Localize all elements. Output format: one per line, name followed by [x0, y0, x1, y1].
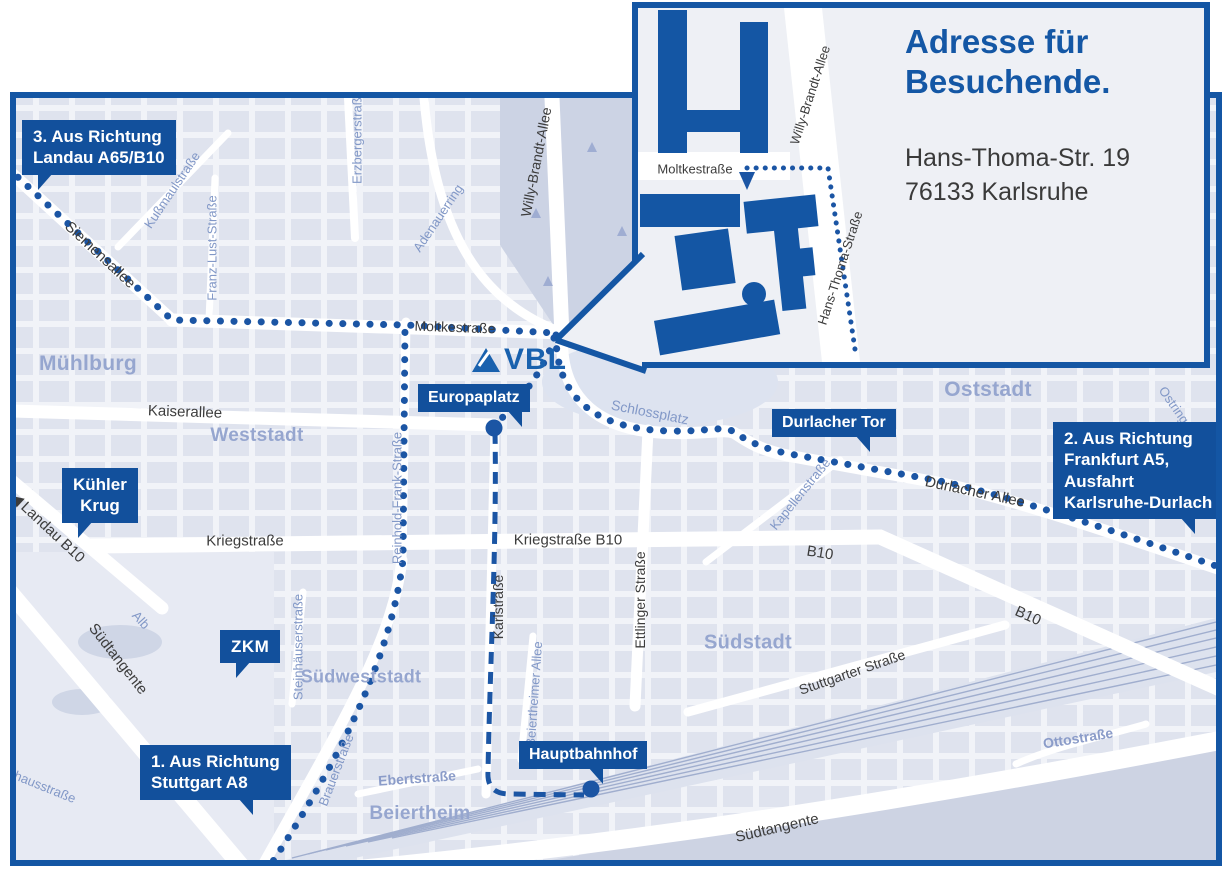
park-pond [78, 625, 162, 659]
europaplatz-dot [486, 420, 503, 437]
visitor-address-inset: Adresse für Besuchende. Hans-Thoma-Str. … [632, 2, 1210, 368]
vbl-directions-map: Siemensallee Kaiserallee Moltkestraße Kr… [0, 0, 1230, 874]
inset-street-label-moltkestrasse: Moltkestraße [657, 162, 732, 177]
inset-heading: Adresse für Besuchende. [905, 22, 1110, 101]
hauptbahnhof-dot [583, 781, 600, 798]
route-arrow-icon [739, 172, 755, 190]
inset-address: Hans-Thoma-Str. 19 76133 Karlsruhe [905, 142, 1130, 210]
